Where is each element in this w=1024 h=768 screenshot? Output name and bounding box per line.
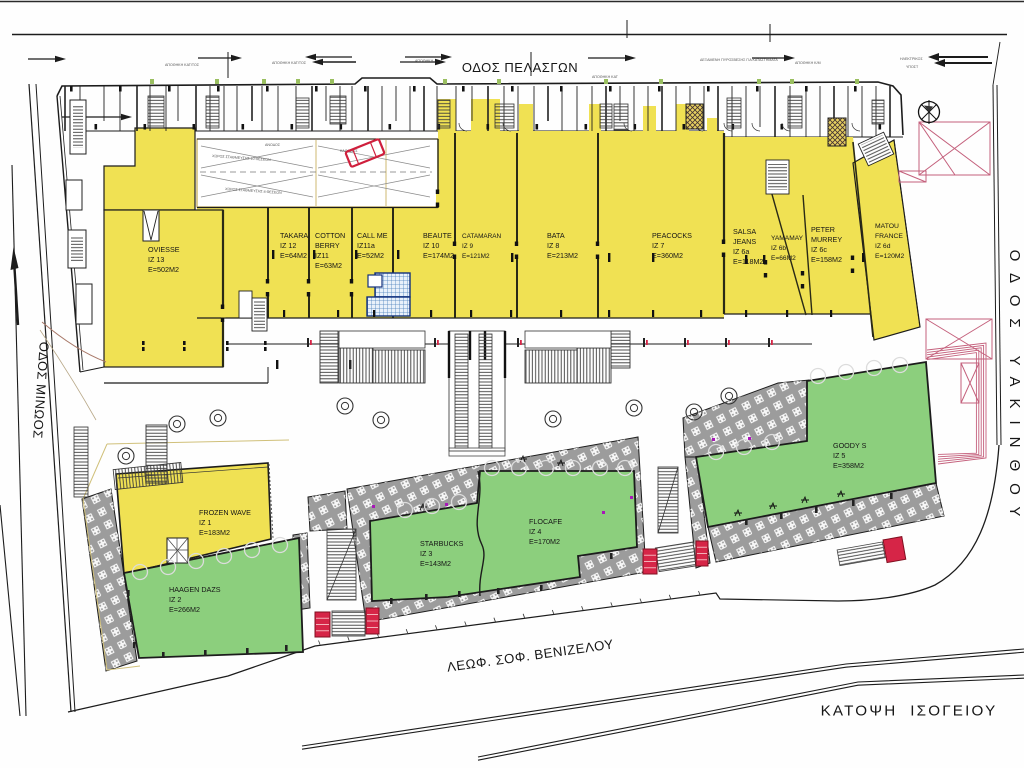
svg-text:E=213M2: E=213M2 bbox=[547, 251, 578, 260]
svg-text:FLOCAFE: FLOCAFE bbox=[529, 517, 562, 526]
svg-text:ΟΔΟΣ ΥΑΚΙΝΘΟΥ: ΟΔΟΣ ΥΑΚΙΝΘΟΥ bbox=[1006, 250, 1023, 529]
svg-text:ΙΖ 13: ΙΖ 13 bbox=[148, 255, 164, 264]
svg-text:ΙΖ 2: ΙΖ 2 bbox=[169, 595, 181, 604]
svg-text:E=120M2: E=120M2 bbox=[875, 253, 905, 260]
svg-text:BEAUTE: BEAUTE bbox=[423, 231, 452, 240]
svg-text:E=158M2: E=158M2 bbox=[811, 255, 842, 264]
svg-text:CALL ME: CALL ME bbox=[357, 231, 388, 240]
svg-text:ΙΖ11a: ΙΖ11a bbox=[357, 241, 375, 250]
svg-text:ΑΠΟΘΗΚΗ Κ/Μ: ΑΠΟΘΗΚΗ Κ/Μ bbox=[795, 61, 821, 65]
svg-text:BATA: BATA bbox=[547, 231, 565, 240]
svg-text:E=143M2: E=143M2 bbox=[420, 559, 451, 568]
svg-text:ΗΛΕΚΤΡΙΚΟΣ: ΗΛΕΚΤΡΙΚΟΣ bbox=[900, 57, 923, 61]
svg-text:MURREY: MURREY bbox=[811, 235, 842, 244]
svg-text:ΑΠΟΘΗΚΗ ΚΑΤ/ΤΟΣ: ΑΠΟΘΗΚΗ ΚΑΤ/ΤΟΣ bbox=[272, 61, 307, 65]
svg-text:E=358M2: E=358M2 bbox=[833, 461, 864, 470]
svg-text:ΙΖ 7: ΙΖ 7 bbox=[652, 241, 664, 250]
svg-text:ΑΝΟΔΟΣ: ΑΝΟΔΟΣ bbox=[265, 143, 281, 147]
svg-text:ΙΖ 6d: ΙΖ 6d bbox=[875, 243, 891, 250]
svg-text:FRANCE: FRANCE bbox=[875, 233, 903, 240]
svg-text:E=66M2: E=66M2 bbox=[771, 255, 796, 262]
svg-text:ΙΖ 3: ΙΖ 3 bbox=[420, 549, 432, 558]
svg-text:YAMAMAY: YAMAMAY bbox=[771, 235, 804, 242]
svg-text:TAKARA: TAKARA bbox=[280, 231, 308, 240]
svg-text:JEANS: JEANS bbox=[733, 237, 756, 246]
svg-text:CATAMARAN: CATAMARAN bbox=[462, 233, 502, 240]
svg-text:ΙΖ 9: ΙΖ 9 bbox=[462, 243, 473, 250]
svg-text:ΙΖ 6a: ΙΖ 6a bbox=[733, 247, 749, 256]
svg-text:ΙΖ 6b: ΙΖ 6b bbox=[771, 245, 786, 252]
svg-text:E=118M2: E=118M2 bbox=[733, 257, 763, 266]
svg-text:COTTON: COTTON bbox=[315, 231, 345, 240]
svg-text:ΙΖ 5: ΙΖ 5 bbox=[833, 451, 845, 460]
svg-text:BERRY: BERRY bbox=[315, 241, 340, 250]
svg-text:ΑΠΟΘΗΚΗ ΚΑΤ: ΑΠΟΘΗΚΗ ΚΑΤ bbox=[592, 75, 619, 79]
svg-text:E=183M2: E=183M2 bbox=[199, 528, 230, 537]
svg-text:E=170M2: E=170M2 bbox=[529, 537, 560, 546]
svg-text:E=174M2: E=174M2 bbox=[423, 251, 454, 260]
svg-text:STARBUCKS: STARBUCKS bbox=[420, 539, 464, 548]
svg-text:ΙΖ 1: ΙΖ 1 bbox=[199, 518, 211, 527]
svg-text:HAAGEN DAZS: HAAGEN DAZS bbox=[169, 585, 221, 594]
svg-text:ΑΠΟΘΗΚΗ: ΑΠΟΘΗΚΗ bbox=[415, 59, 434, 63]
svg-text:ΙΖ 8: ΙΖ 8 bbox=[547, 241, 559, 250]
svg-text:PEACOCKS: PEACOCKS bbox=[652, 231, 692, 240]
svg-text:E=64M2: E=64M2 bbox=[280, 251, 307, 260]
svg-text:ΙΖ 12: ΙΖ 12 bbox=[280, 241, 296, 250]
svg-text:E=52M2: E=52M2 bbox=[357, 251, 384, 260]
svg-text:GOODY S: GOODY S bbox=[833, 441, 867, 450]
svg-text:SALSA: SALSA bbox=[733, 227, 756, 236]
svg-text:E=360M2: E=360M2 bbox=[652, 251, 683, 260]
svg-text:ΙΖ11: ΙΖ11 bbox=[315, 251, 329, 260]
svg-text:ΙΖ 6c: ΙΖ 6c bbox=[811, 245, 827, 254]
svg-text:ΙΖ 10: ΙΖ 10 bbox=[423, 241, 439, 250]
svg-text:ΙΖ 4: ΙΖ 4 bbox=[529, 527, 541, 536]
svg-text:ΚΑΤΟΨΗ ΙΣΟΓΕΙΟΥ: ΚΑΤΟΨΗ ΙΣΟΓΕΙΟΥ bbox=[821, 703, 998, 720]
svg-text:E=63M2: E=63M2 bbox=[315, 261, 342, 270]
svg-text:PETER: PETER bbox=[811, 225, 835, 234]
svg-text:E=121M2: E=121M2 bbox=[462, 253, 490, 260]
svg-text:ΔΕΞΑΜΕΝΗ ΠΥΡΟΣΒΕΣΗΣ ΓΙΑ ΚΑΤΑΣΤ: ΔΕΞΑΜΕΝΗ ΠΥΡΟΣΒΕΣΗΣ ΓΙΑ ΚΑΤΑΣΤΗΜΑΤΑ bbox=[700, 58, 778, 62]
svg-text:ΥΠΟΣΤ: ΥΠΟΣΤ bbox=[906, 65, 919, 69]
svg-text:OVIESSE: OVIESSE bbox=[148, 245, 180, 254]
svg-text:ΟΔΟΣ ΠΕΛΑΣΓΩΝ: ΟΔΟΣ ΠΕΛΑΣΓΩΝ bbox=[462, 60, 578, 75]
svg-text:ΑΠΟΘΗΚΗ ΚΑΤ/ΤΟΣ: ΑΠΟΘΗΚΗ ΚΑΤ/ΤΟΣ bbox=[165, 63, 200, 67]
svg-text:FROZEN WAVE: FROZEN WAVE bbox=[199, 508, 251, 517]
svg-text:E=266M2: E=266M2 bbox=[169, 605, 200, 614]
svg-text:E=502M2: E=502M2 bbox=[148, 265, 179, 274]
svg-text:MATOU: MATOU bbox=[875, 223, 899, 230]
